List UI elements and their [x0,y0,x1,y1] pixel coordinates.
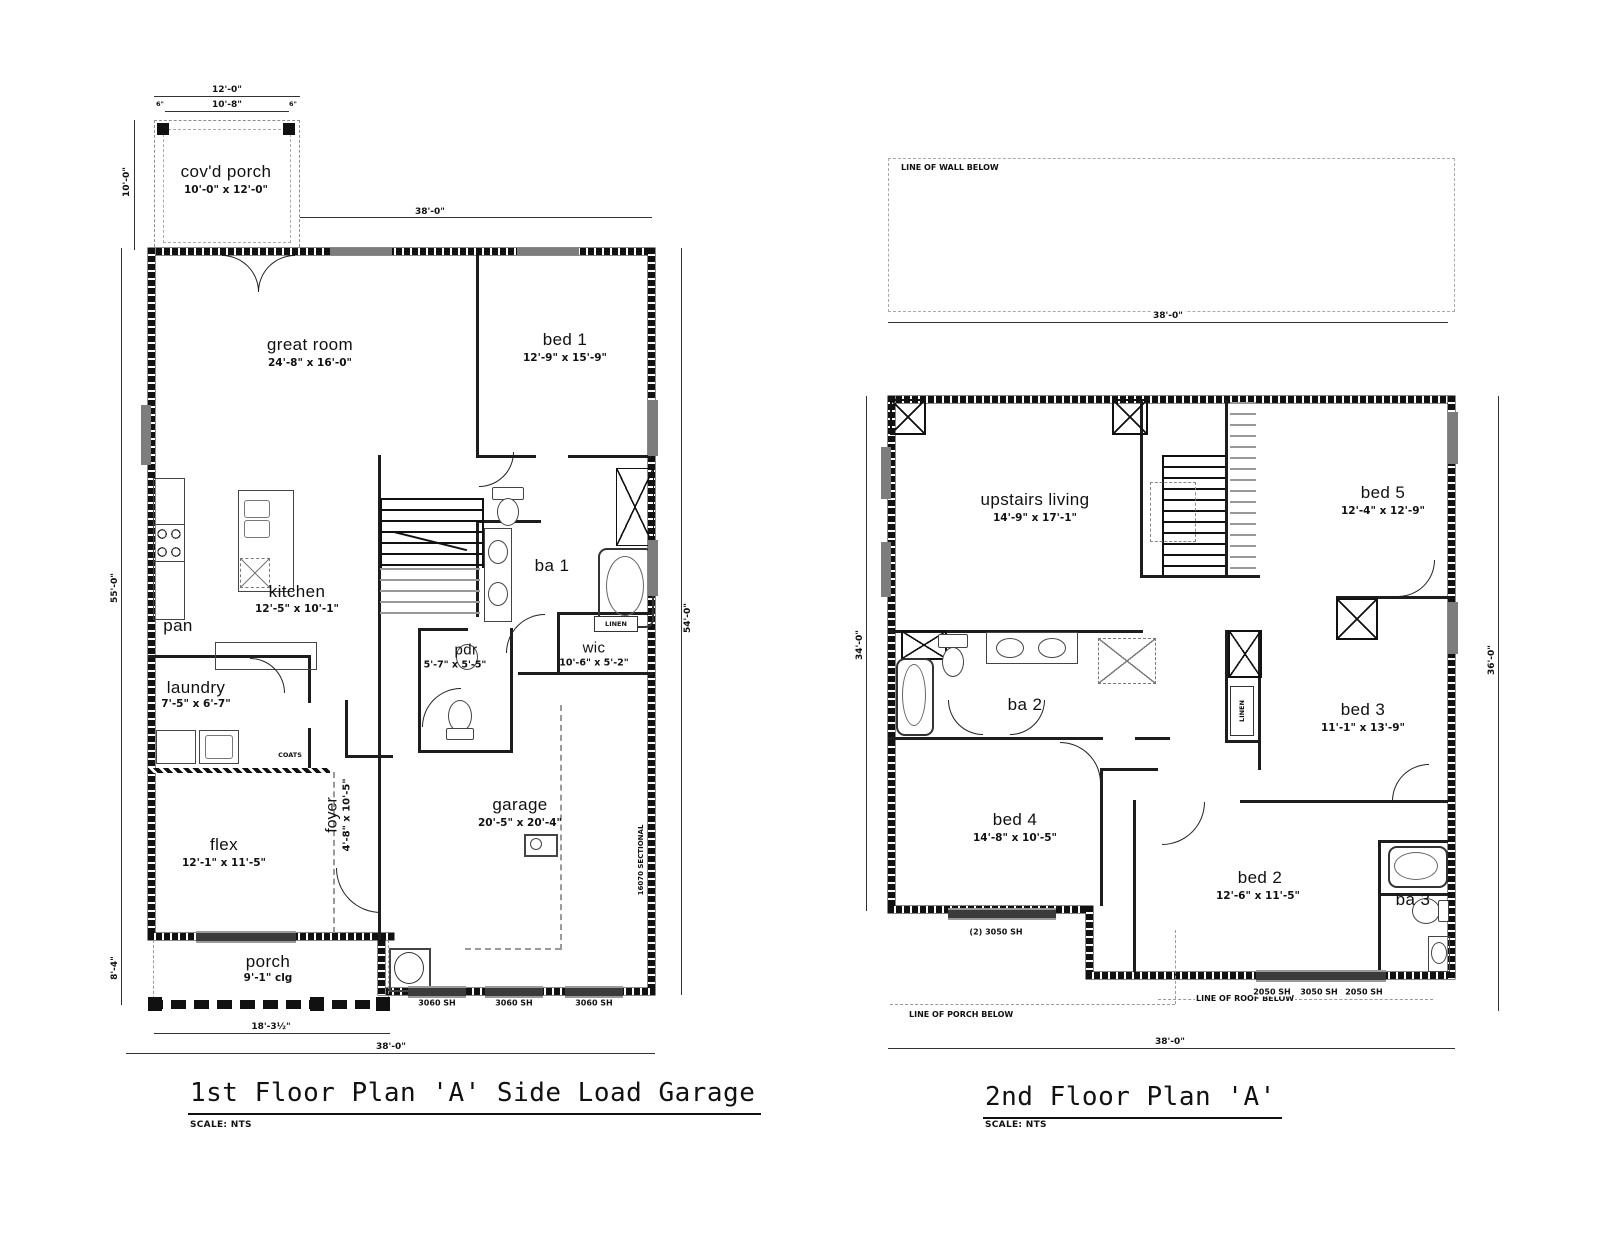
linen-label: LINEN [1230,686,1254,736]
wall-segment [345,700,348,758]
cabinet-icon [244,500,270,518]
sink-icon [1038,638,1066,658]
shower-icon [1098,638,1156,684]
room-label-pan: pan [163,616,193,636]
wall-segment [518,672,653,675]
wall-segment [378,940,385,995]
window [881,542,891,597]
wall-segment [308,728,311,770]
hvac-fan-icon [394,952,424,984]
wall-segment [888,396,1455,403]
door-arc [479,452,514,487]
column-box-icon [1336,598,1378,640]
dim-label: 54'-0" [683,601,693,635]
sink-icon [1431,942,1447,964]
window-label: 2050 SH [1252,988,1292,997]
linen-label-text: LINEN [1238,700,1246,722]
room-label-garage: garage [492,795,547,815]
dim-line [681,248,682,995]
window [196,931,296,943]
door-arc [1398,560,1435,597]
dim-line [165,111,289,112]
dim-label: 38'-0" [1151,311,1185,321]
room-label-foyer: foyer [324,778,342,851]
wall-segment-hatched [148,768,330,773]
coats-label: COATS [277,751,303,759]
dryer-door-icon [205,735,233,759]
dim-tick-label: 6" [289,100,297,108]
dim-label: 38'-0" [374,1042,408,1052]
wall-segment [1378,840,1448,843]
room-label-bed3: bed 3 [1341,700,1386,720]
wall-segment [1133,800,1136,972]
wall-segment [1378,840,1381,972]
line-of-porch-below [890,1004,1175,1005]
wall-segment [888,737,1103,740]
dim-line [121,248,122,933]
dim-line [121,933,122,1005]
window-label: 3060 SH [574,999,614,1008]
dim-label: 10'-8" [210,100,244,110]
room-dims-covd-porch: 10'-0" x 12'-0" [184,184,268,196]
column-box-icon [1228,630,1262,678]
room-label-pdr: pdr [455,642,478,659]
room-dims-wic: 10'-6" x 5'-2" [559,658,628,669]
washer-icon [156,730,196,764]
room-dims-upstairs-living: 14'-9" x 17'-1" [993,512,1077,524]
room-dims-bed2: 12'-6" x 11'-5" [1216,890,1300,902]
door-arc [948,700,983,735]
room-dims-bed4: 14'-8" x 10'-5" [973,832,1057,844]
window [648,400,658,456]
dim-label: 12'-0" [210,85,244,95]
room-label-bed4: bed 4 [993,810,1038,830]
plan1-title: 1st Floor Plan 'A' Side Load Garage [188,1078,761,1115]
dim-label: 36'-0" [1487,643,1497,677]
window-label: 3050 SH [1299,988,1339,997]
line-of-porch-below [1175,930,1176,1004]
wall-segment [1448,396,1455,979]
room-dims-foyer: 4'-8" x 10'-5" [342,778,353,851]
garage-dashed-line [465,948,561,950]
room-label-ba2: ba 2 [1008,695,1043,715]
stairs-open-to-below [1150,482,1196,542]
room-label-upstairs-living: upstairs living [981,490,1090,510]
porch-post [310,997,324,1011]
room-label-foyer-group: foyer 4'-8" x 10'-5" [324,778,353,851]
room-label-wic: wic [583,640,606,657]
shower-icon [616,468,654,546]
dim-line [866,396,867,911]
dim-tick-label: 6" [156,100,164,108]
window-label: 2050 SH [1344,988,1384,997]
dim-label: 10'-0" [122,165,132,199]
window [1448,412,1458,464]
plan2-scale-label: SCALE: NTS [985,1120,1047,1130]
wall-segment [1225,740,1261,743]
door-arc [1060,742,1101,783]
wall-segment [1100,768,1158,771]
wall-segment [418,628,468,631]
door-arc [336,868,381,913]
wall-segment [345,755,393,758]
room-dims-laundry: 7'-5" x 6'-7" [161,698,230,710]
plan2-title: 2nd Floor Plan 'A' [983,1082,1282,1119]
room-label-flex: flex [210,835,238,855]
toilet-icon [497,498,519,526]
window [881,447,891,499]
door-arc [422,688,461,727]
door-arc [1392,764,1429,801]
door-arc [222,255,259,292]
room-label-bed1: bed 1 [543,330,588,350]
room-dims-kitchen: 12'-5" x 10'-1" [255,603,339,615]
toilet-icon [942,647,964,677]
window [485,986,543,998]
plan1-scale-label: SCALE: NTS [190,1120,252,1130]
porch-post [376,997,390,1011]
stairs-dashed [1230,402,1256,576]
window [565,986,623,998]
room-label-ba3: ba 3 [1396,890,1431,910]
dim-line [888,1048,1455,1049]
cabinet-icon [244,520,270,538]
tub-basin-icon [902,664,926,726]
room-label-ba1: ba 1 [535,556,570,576]
dim-line [154,96,300,97]
window-label: 3060 SH [494,999,534,1008]
wall-segment [476,255,479,455]
dim-label: 38'-0" [413,207,447,217]
window [948,908,1056,920]
toilet-icon [938,634,968,648]
room-dims-bed1: 12'-9" x 15'-9" [523,352,607,364]
toilet-icon [1438,900,1449,922]
wall-segment [1225,400,1228,578]
wall-segment [418,628,421,752]
tub-basin-icon [1394,852,1438,880]
floor-plan-sheet: 12'-0" 10'-8" 6" 6" 10'-0" 38'-0" [0,0,1600,1236]
stove-icon [153,524,185,562]
sink-icon [488,540,508,564]
wall-segment [418,750,513,753]
window [1448,602,1458,654]
porch-dashed-edge [153,940,154,1004]
sink-icon [488,582,508,606]
window [141,405,151,465]
window [648,540,658,596]
door-arc [1162,802,1205,845]
room-label-kitchen: kitchen [269,582,326,602]
door-arc [258,255,295,292]
column-box-icon [890,399,926,435]
room-label-porch: porch [246,952,291,972]
dim-line [300,217,652,218]
linen-label: LINEN [594,616,638,632]
dim-line [126,1053,655,1054]
room-label-bed2: bed 2 [1238,868,1283,888]
dim-line [1498,396,1499,1011]
room-label-great-room: great room [267,335,353,355]
sink-icon [996,638,1024,658]
wall-segment [1100,770,1103,906]
line-of-wall-below-outline [888,158,1455,312]
window [408,986,466,998]
line-of-wall-below-label: LINE OF WALL BELOW [900,163,1000,172]
kitchen-sink-icon [240,558,270,588]
dim-label: 34'-0" [855,628,865,662]
wall-segment [568,455,651,458]
garage-door-opener-symbol [530,838,542,850]
window [1256,970,1386,982]
dim-line [154,1033,390,1034]
wall-segment [1135,737,1170,740]
room-dims-porch: 9'-1" clg [244,972,293,984]
dim-line [888,322,1448,323]
line-of-porch-below-label: LINE OF PORCH BELOW [908,1010,1014,1019]
toilet-icon [446,728,474,740]
room-label-laundry: laundry [167,678,226,698]
tub-basin-icon [606,556,644,616]
column-box-icon [1112,399,1148,435]
window [330,248,392,255]
room-dims-pdr: 5'-7" x 5'-5" [424,660,487,671]
sectional-door-label: 16070 SECTIONAL [637,824,645,897]
room-label-bed5: bed 5 [1361,483,1406,503]
room-dims-bed3: 11'-1" x 13'-9" [1321,722,1405,734]
window [517,248,579,255]
room-dims-garage: 20'-5" x 20'-4" [478,817,562,829]
room-label-covd-porch: cov'd porch [181,162,272,182]
room-dims-bed5: 12'-4" x 12'-9" [1341,505,1425,517]
dim-label: 8'-4" [110,954,120,982]
wall-segment [1086,906,1093,979]
dim-line [134,120,135,250]
porch-post [148,997,162,1011]
window-label: 3060 SH [417,999,457,1008]
porch-post [283,123,295,135]
stairs-dashed [380,568,480,616]
dim-label: 18'-3½" [249,1022,292,1032]
porch-dashed-front [148,1000,390,1009]
dim-label: 38'-0" [1153,1037,1187,1047]
window-label: (2) 3050 SH [968,928,1023,937]
porch-post [157,123,169,135]
dim-label: 55'-0" [110,571,120,605]
room-dims-great-room: 24'-8" x 16'-0" [268,357,352,369]
room-dims-flex: 12'-1" x 11'-5" [182,857,266,869]
